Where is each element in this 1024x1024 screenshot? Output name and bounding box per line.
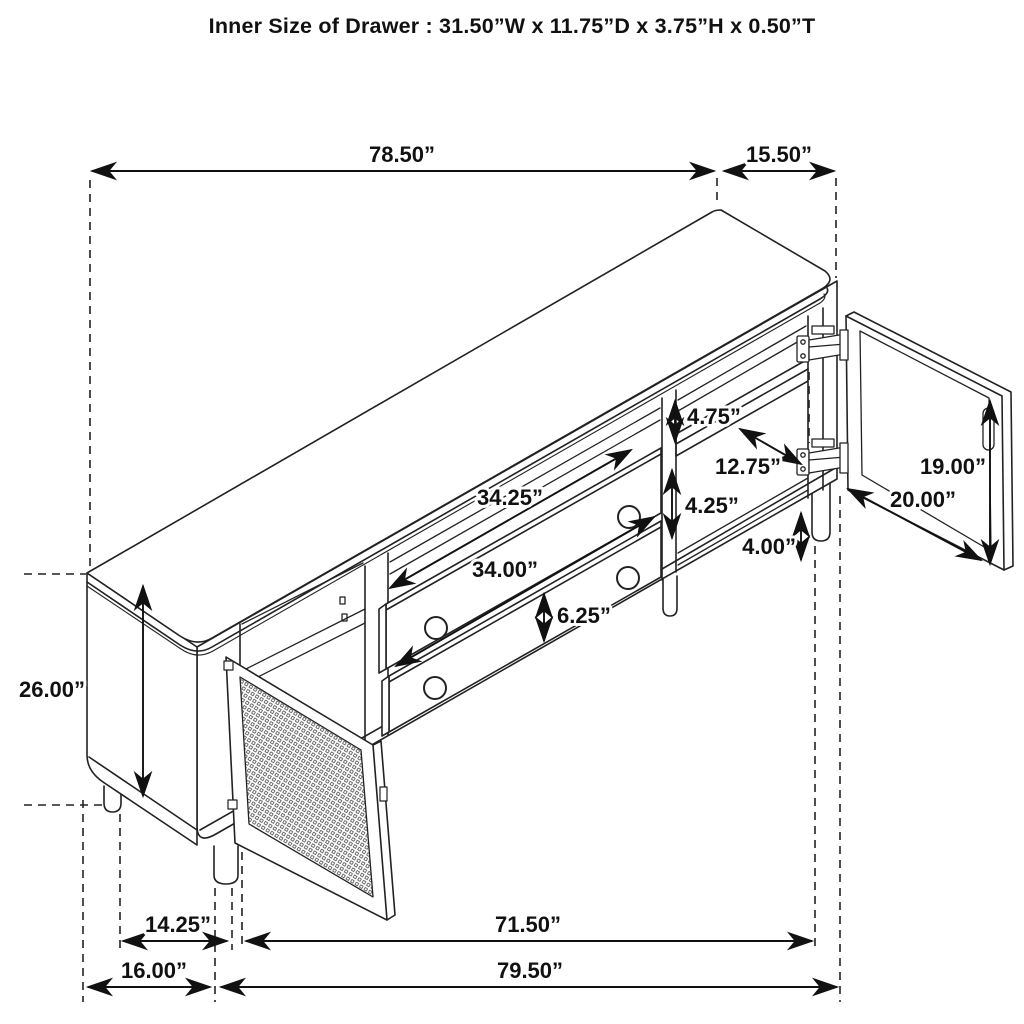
drawer-knob	[424, 677, 446, 699]
dim-left-leg-inset: 14.25”	[123, 912, 227, 941]
door-hinge-mark	[224, 661, 233, 670]
dim-top-depth: 15.50”	[724, 142, 834, 171]
leg-middle	[663, 576, 677, 616]
dim-label-drawer-width: 34.00”	[472, 557, 538, 582]
door-hinge-mark	[228, 800, 237, 809]
dim-overall-width: 79.50”	[221, 958, 837, 987]
right-door	[846, 312, 1013, 570]
door-handle-notch	[380, 787, 387, 801]
dim-base-span: 71.50”	[246, 912, 812, 941]
dim-label-lower-compartment-height: 4.25”	[685, 493, 739, 518]
dim-label-top-depth: 15.50”	[746, 142, 812, 167]
dim-label-drawer-opening-width: 34.25”	[477, 485, 543, 510]
dim-label-right-door-width: 20.00”	[890, 487, 956, 512]
leg-front-left	[214, 846, 238, 884]
dim-label-overall-height: 26.00”	[19, 677, 85, 702]
dimension-diagram-page: Inner Size of Drawer : 31.50”W x 11.75”D…	[0, 0, 1024, 1024]
door-handle-groove	[983, 408, 994, 450]
dim-left-section-width: 16.00”	[88, 958, 210, 987]
dim-label-left-leg-inset: 14.25”	[145, 912, 211, 937]
dim-label-upper-compartment-height: 4.75”	[687, 404, 741, 429]
dim-label-shelf-depth: 12.75”	[715, 454, 781, 479]
dim-top-length: 78.50”	[92, 142, 714, 171]
page-title: Inner Size of Drawer : 31.50”W x 11.75”D…	[0, 14, 1024, 39]
dim-label-base-span: 71.50”	[495, 912, 561, 937]
dim-label-overall-width: 79.50”	[497, 958, 563, 983]
drawer-knob	[617, 567, 639, 589]
drawer-knob	[618, 506, 640, 528]
dim-label-leg-height: 4.00”	[742, 534, 796, 559]
dim-label-left-section-width: 16.00”	[121, 958, 187, 983]
drawer-knob	[425, 617, 447, 639]
dim-label-right-door-height: 19.00”	[920, 454, 986, 479]
dim-label-drawer-face-height: 6.25”	[557, 603, 611, 628]
dim-label-top-length: 78.50”	[369, 142, 435, 167]
furniture-dimension-drawing: 78.50” 15.50” 26.00” 4.75” 12.75” 34.25”	[0, 0, 1024, 1024]
